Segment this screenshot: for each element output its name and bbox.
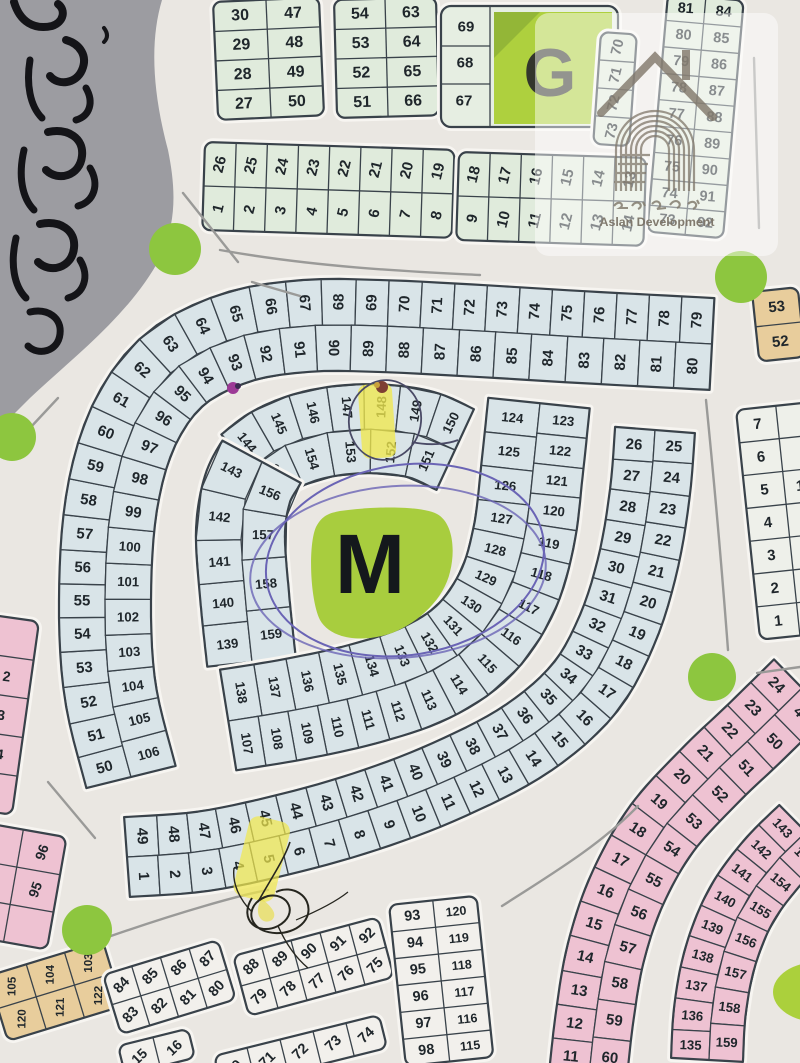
svg-text:1: 1 (773, 612, 783, 630)
svg-text:22: 22 (653, 531, 672, 551)
svg-text:104: 104 (121, 677, 145, 695)
svg-text:7: 7 (753, 415, 763, 433)
svg-text:28: 28 (618, 497, 637, 516)
svg-text:82: 82 (612, 353, 630, 371)
svg-text:96: 96 (412, 988, 430, 1006)
svg-text:116: 116 (457, 1011, 479, 1027)
svg-text:67: 67 (456, 93, 473, 110)
svg-text:27: 27 (622, 467, 640, 486)
svg-text:159: 159 (715, 1034, 738, 1050)
svg-text:120: 120 (542, 502, 566, 519)
svg-text:29: 29 (613, 528, 633, 548)
svg-text:121: 121 (545, 472, 568, 489)
svg-text:6: 6 (756, 448, 766, 466)
svg-text:88: 88 (396, 341, 414, 358)
svg-text:12: 12 (565, 1014, 584, 1033)
svg-text:M: M (335, 517, 405, 611)
svg-text:52: 52 (352, 64, 370, 81)
svg-text:115: 115 (459, 1038, 481, 1054)
svg-text:78: 78 (656, 310, 674, 328)
svg-text:49: 49 (133, 827, 151, 845)
svg-text:54: 54 (351, 5, 369, 22)
svg-text:68: 68 (330, 293, 347, 310)
svg-text:103: 103 (82, 953, 95, 973)
svg-text:85: 85 (503, 347, 521, 365)
svg-text:63: 63 (402, 4, 420, 21)
svg-text:29: 29 (232, 36, 251, 54)
svg-text:53: 53 (352, 35, 370, 52)
svg-text:119: 119 (448, 930, 470, 946)
svg-text:100: 100 (118, 538, 141, 555)
svg-text:2: 2 (770, 580, 780, 598)
svg-text:58: 58 (79, 491, 98, 510)
svg-text:13: 13 (570, 981, 589, 1000)
svg-text:105: 105 (5, 976, 18, 996)
svg-text:69: 69 (363, 294, 381, 311)
svg-text:104: 104 (44, 964, 57, 984)
svg-text:49: 49 (286, 63, 305, 81)
svg-text:64: 64 (403, 33, 421, 50)
svg-text:93: 93 (403, 907, 421, 925)
svg-text:123: 123 (552, 412, 575, 429)
svg-text:57: 57 (76, 525, 94, 543)
svg-text:101: 101 (117, 574, 139, 590)
svg-text:153: 153 (342, 440, 359, 463)
svg-text:23: 23 (658, 500, 677, 519)
svg-text:52: 52 (79, 693, 99, 713)
svg-text:158: 158 (718, 998, 742, 1016)
svg-text:135: 135 (679, 1037, 702, 1053)
svg-text:94: 94 (406, 934, 424, 952)
svg-text:122: 122 (548, 442, 571, 459)
svg-text:59: 59 (605, 1011, 624, 1030)
svg-text:26: 26 (625, 436, 643, 454)
svg-text:97: 97 (415, 1015, 433, 1033)
svg-text:54: 54 (74, 626, 92, 644)
svg-text:139: 139 (216, 635, 240, 652)
svg-text:86: 86 (467, 345, 485, 363)
svg-text:84: 84 (539, 349, 557, 367)
svg-text:48: 48 (285, 34, 304, 52)
svg-text:117: 117 (454, 984, 476, 1000)
svg-text:140: 140 (211, 595, 234, 612)
svg-text:25: 25 (665, 438, 683, 456)
svg-text:24: 24 (663, 469, 682, 488)
svg-text:89: 89 (360, 340, 378, 357)
svg-text:95: 95 (409, 961, 427, 979)
svg-text:11: 11 (562, 1047, 580, 1063)
svg-text:121: 121 (54, 997, 67, 1017)
svg-text:75: 75 (558, 304, 576, 322)
svg-text:3: 3 (766, 547, 776, 565)
svg-text:76: 76 (591, 306, 609, 324)
svg-text:120: 120 (15, 1009, 28, 1029)
svg-text:91: 91 (290, 341, 308, 359)
svg-text:127: 127 (490, 509, 514, 527)
svg-text:52: 52 (771, 332, 789, 351)
svg-text:120: 120 (445, 903, 467, 919)
svg-text:48: 48 (164, 825, 182, 843)
svg-text:73: 73 (493, 300, 511, 318)
svg-text:77: 77 (623, 308, 641, 326)
svg-text:90: 90 (325, 340, 342, 357)
svg-text:Aslan Development: Aslan Development (600, 215, 715, 229)
svg-text:87: 87 (431, 343, 449, 361)
svg-text:68: 68 (457, 55, 474, 72)
svg-text:47: 47 (284, 4, 303, 22)
svg-text:69: 69 (458, 19, 475, 36)
svg-text:74: 74 (526, 302, 544, 320)
svg-text:70: 70 (396, 295, 414, 312)
svg-text:67: 67 (295, 294, 313, 312)
svg-text:99: 99 (124, 503, 143, 522)
svg-text:2: 2 (166, 869, 184, 879)
svg-text:51: 51 (353, 94, 371, 111)
svg-text:136: 136 (681, 1007, 704, 1024)
svg-text:10: 10 (795, 476, 800, 495)
svg-text:30: 30 (231, 7, 250, 25)
svg-text:27: 27 (235, 95, 254, 113)
svg-text:142: 142 (208, 508, 232, 525)
svg-text:141: 141 (208, 553, 231, 570)
svg-text:66: 66 (404, 92, 422, 109)
svg-text:147: 147 (339, 396, 356, 419)
svg-text:5: 5 (759, 481, 769, 499)
svg-text:83: 83 (576, 351, 594, 369)
svg-text:92: 92 (256, 344, 276, 363)
svg-text:79: 79 (688, 311, 706, 329)
svg-text:53: 53 (768, 298, 786, 317)
svg-text:56: 56 (74, 559, 91, 577)
svg-text:102: 102 (117, 609, 139, 624)
svg-text:55: 55 (74, 592, 91, 609)
svg-text:118: 118 (451, 957, 473, 973)
svg-text:81: 81 (648, 355, 666, 373)
svg-text:98: 98 (418, 1042, 436, 1060)
svg-text:53: 53 (75, 659, 93, 677)
svg-text:46: 46 (224, 816, 244, 836)
svg-text:80: 80 (684, 357, 702, 375)
svg-text:58: 58 (610, 974, 629, 994)
svg-text:50: 50 (288, 93, 307, 111)
svg-text:103: 103 (118, 644, 141, 660)
svg-text:72: 72 (461, 299, 479, 317)
svg-text:47: 47 (194, 821, 213, 840)
svg-text:28: 28 (233, 66, 252, 84)
svg-text:1: 1 (135, 872, 152, 881)
svg-text:65: 65 (403, 63, 421, 80)
svg-text:60: 60 (601, 1049, 619, 1063)
svg-text:66: 66 (261, 297, 280, 316)
svg-text:124: 124 (501, 409, 525, 426)
svg-text:71: 71 (428, 297, 446, 315)
svg-text:125: 125 (497, 443, 520, 460)
